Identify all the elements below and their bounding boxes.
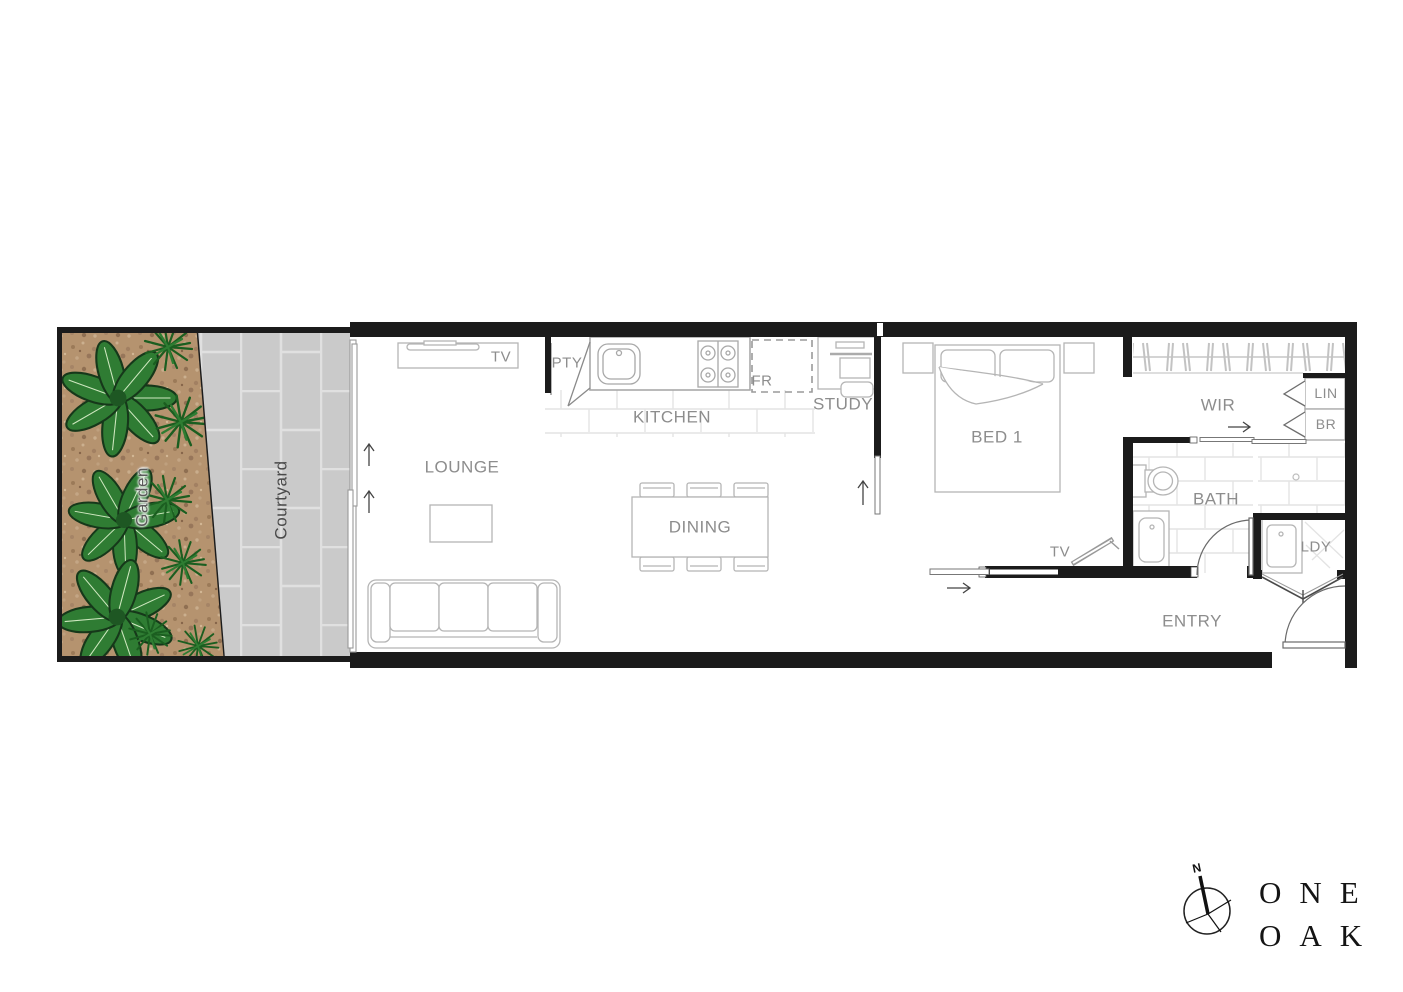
bed	[935, 345, 1060, 492]
coffee-table	[430, 505, 492, 542]
broom-label: BR	[1316, 417, 1336, 431]
tv-lounge-label: TV	[491, 350, 511, 365]
vanity-basin	[1133, 511, 1169, 569]
linen-label: LIN	[1314, 386, 1337, 400]
kitchen-label: KITCHEN	[633, 409, 711, 426]
lounge-label: LOUNGE	[425, 459, 500, 476]
dining-label: DINING	[669, 519, 732, 536]
wardrobe-hanging-clothes	[1133, 339, 1345, 373]
floor-plan-page: Garden Courtyard TV PTY KITCHEN FR STUDY…	[0, 0, 1403, 992]
entry-door	[1283, 586, 1345, 648]
garden-bed	[38, 323, 225, 696]
logo-line-one: ONE	[1259, 877, 1377, 908]
laundry-trough	[1262, 519, 1302, 573]
bedside-table	[903, 343, 933, 373]
fridge-label: FR	[752, 374, 773, 389]
study-label: STUDY	[813, 396, 873, 413]
courtyard-label: Courtyard	[273, 460, 290, 539]
bath-label: BATH	[1193, 491, 1239, 508]
pantry-label: PTY	[552, 356, 583, 371]
shower-floor-tiles	[1258, 443, 1345, 513]
sofa	[368, 580, 560, 648]
study-desk	[818, 337, 878, 397]
tv-bedroom-label: TV	[1050, 545, 1070, 560]
tv-wall-bedroom	[1072, 539, 1119, 564]
compass-icon	[1184, 876, 1231, 934]
toilet	[1132, 465, 1178, 497]
laundry-label: LDY	[1301, 540, 1332, 555]
wir-label: WIR	[1201, 397, 1236, 414]
logo-line-oak: OAK	[1259, 920, 1380, 951]
bed1-label: BED 1	[971, 429, 1023, 446]
study-sliding-door	[875, 456, 880, 514]
garden-label: Garden	[134, 467, 151, 527]
wardrobe-sliding-door	[1200, 438, 1306, 444]
cooktop	[698, 341, 738, 387]
bedroom-sliding-door	[930, 569, 989, 575]
entry-label: ENTRY	[1162, 613, 1222, 630]
laundry-bifold-doors	[1262, 574, 1343, 603]
bedside-table	[1064, 343, 1094, 373]
